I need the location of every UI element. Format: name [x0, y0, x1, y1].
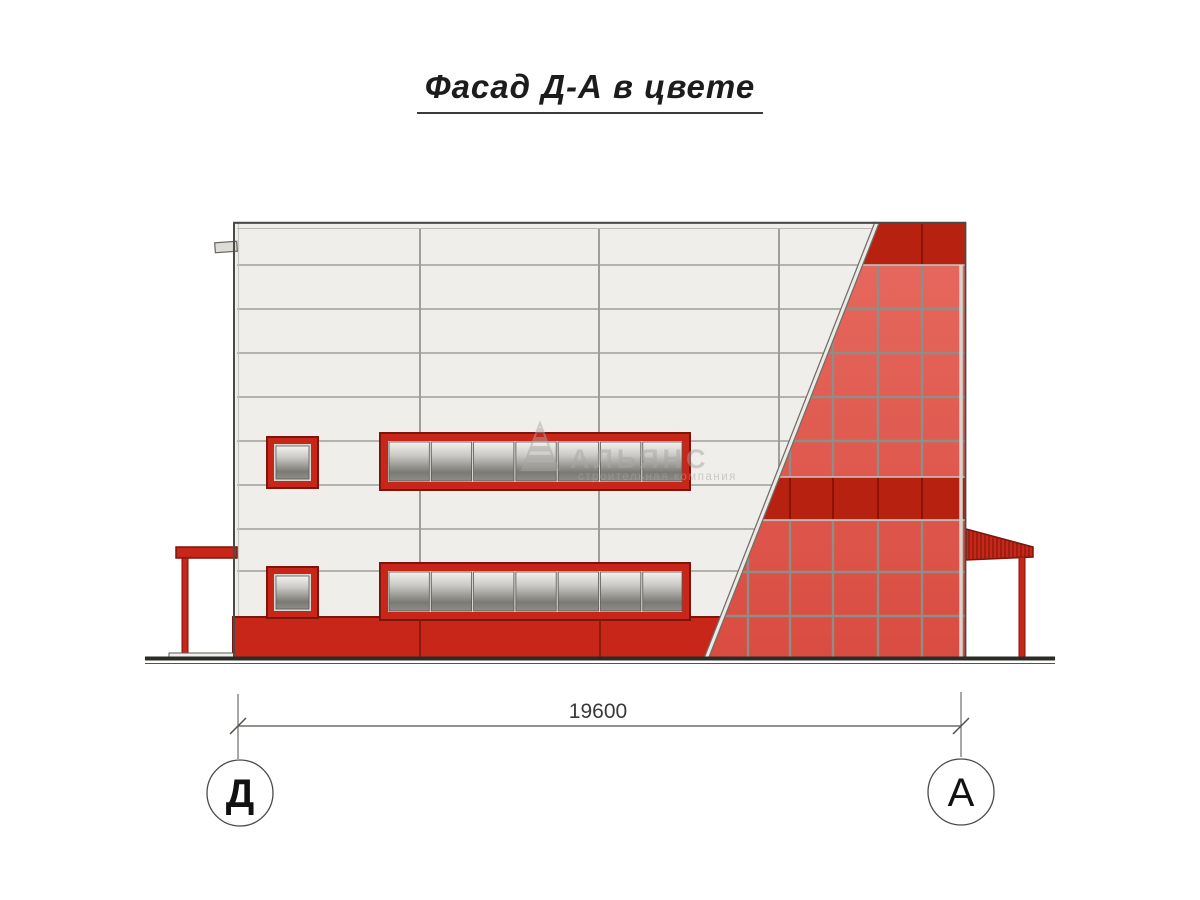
ground-line: [145, 657, 1055, 664]
watermark-name: АЛЬЯНС: [570, 444, 710, 474]
axis-marker-left: Д: [207, 760, 273, 826]
plinth: [233, 617, 722, 659]
left-canopy: [169, 547, 237, 660]
window-panes: [389, 572, 682, 611]
window-small-upper: [267, 437, 318, 488]
canopy-roof: [966, 529, 1033, 560]
canopy-post: [1019, 557, 1025, 657]
canopy-post: [182, 558, 188, 655]
dark-red-middle-band: [760, 477, 966, 520]
axis-marker-right: А: [928, 759, 994, 825]
drawing-canvas: Фасад Д-А в цвете: [0, 0, 1200, 900]
window-small-lower: [267, 567, 318, 618]
axis-label-right: А: [948, 771, 975, 815]
building: [169, 222, 1033, 660]
right-canopy: [966, 529, 1033, 657]
plinth-band: [233, 617, 722, 659]
dimension: 19600: [230, 692, 969, 759]
canopy-slab: [176, 547, 237, 558]
window-band-lower: [380, 563, 690, 620]
watermark-tagline: строительная компания: [578, 471, 737, 483]
dimension-value: 19600: [569, 700, 627, 723]
facade-drawing: АЛЬЯНС строительная компания 19600 Д А: [0, 0, 1200, 900]
axis-label-left: Д: [226, 772, 255, 816]
